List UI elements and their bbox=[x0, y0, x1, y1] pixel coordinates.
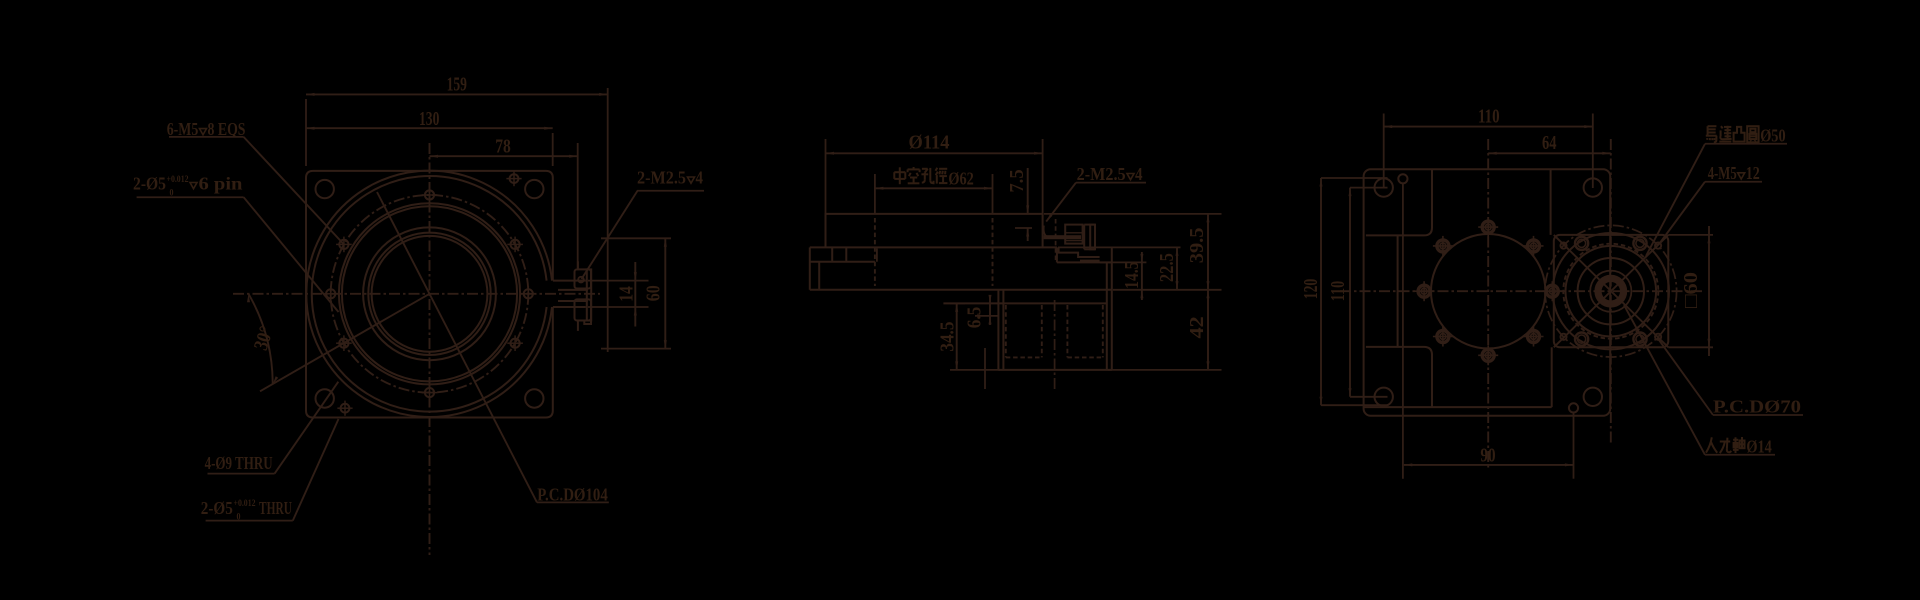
svg-text:110: 110 bbox=[1478, 106, 1500, 128]
svg-text:7.5: 7.5 bbox=[1006, 169, 1028, 192]
svg-text:60: 60 bbox=[643, 285, 665, 301]
svg-text:120: 120 bbox=[1300, 279, 1322, 300]
svg-text:130: 130 bbox=[419, 108, 439, 130]
svg-text:42: 42 bbox=[1186, 316, 1208, 338]
svg-text:THRU: THRU bbox=[259, 498, 292, 518]
svg-text:110: 110 bbox=[1327, 281, 1349, 302]
svg-text:159: 159 bbox=[447, 73, 467, 95]
svg-text:22.5: 22.5 bbox=[1156, 253, 1178, 282]
svg-text:2-Ø5: 2-Ø5 bbox=[201, 498, 233, 518]
svg-text:+0.012: +0.012 bbox=[167, 175, 189, 185]
svg-text:6-M5: 6-M5 bbox=[167, 119, 199, 139]
svg-text:Ø62: Ø62 bbox=[948, 169, 973, 189]
svg-text:2-M2.5: 2-M2.5 bbox=[1077, 164, 1126, 184]
svg-text:Ø14: Ø14 bbox=[1746, 437, 1771, 457]
svg-text:4-Ø9 THRU: 4-Ø9 THRU bbox=[205, 453, 273, 473]
svg-text:□60: □60 bbox=[1680, 272, 1702, 308]
svg-text:6 pin: 6 pin bbox=[199, 174, 243, 194]
svg-text:+0.012: +0.012 bbox=[234, 499, 256, 509]
svg-text:6.5: 6.5 bbox=[963, 307, 985, 329]
svg-text:34.5: 34.5 bbox=[937, 322, 959, 352]
svg-text:12: 12 bbox=[1746, 163, 1760, 183]
svg-text:64: 64 bbox=[1542, 132, 1557, 154]
svg-text:4-M5: 4-M5 bbox=[1708, 163, 1737, 183]
svg-text:14.5: 14.5 bbox=[1121, 262, 1143, 289]
svg-text:2-M2.5: 2-M2.5 bbox=[637, 168, 686, 188]
svg-text:Ø50: Ø50 bbox=[1760, 125, 1785, 145]
svg-text:8 EQS: 8 EQS bbox=[208, 119, 246, 139]
svg-text:4: 4 bbox=[1135, 164, 1143, 184]
svg-text:14: 14 bbox=[615, 286, 637, 302]
svg-text:39.5: 39.5 bbox=[1186, 228, 1208, 264]
svg-text:90: 90 bbox=[1480, 445, 1495, 467]
svg-text:P.C.DØ70: P.C.DØ70 bbox=[1713, 397, 1801, 417]
svg-text:P.C.DØ104: P.C.DØ104 bbox=[537, 485, 608, 505]
svg-text:2-Ø5: 2-Ø5 bbox=[133, 174, 166, 194]
svg-text:Ø114: Ø114 bbox=[909, 132, 950, 154]
svg-text:78: 78 bbox=[495, 136, 511, 158]
svg-text:4: 4 bbox=[696, 168, 704, 188]
